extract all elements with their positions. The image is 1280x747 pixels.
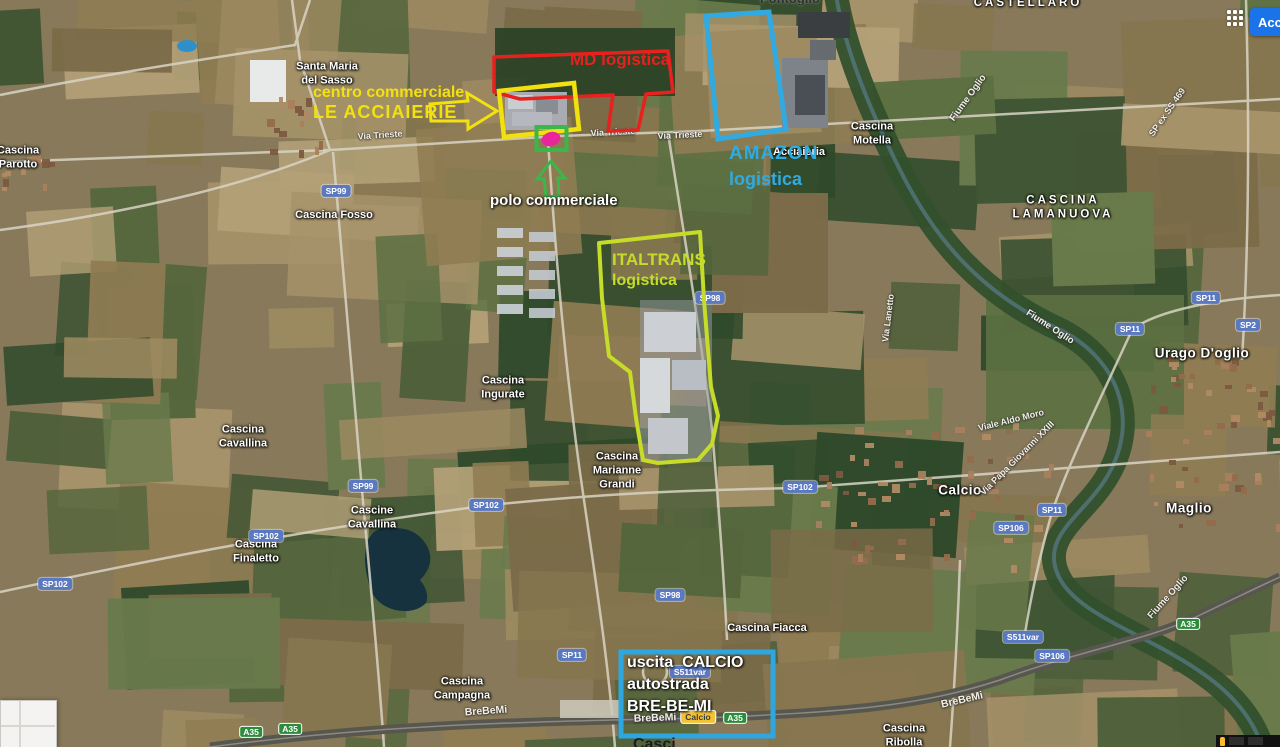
apps-grid-dot (1227, 22, 1231, 26)
satellite-map[interactable]: Santa Mariadel SassoCascinaParottoCascin… (0, 0, 1280, 747)
apps-grid-dot (1239, 16, 1243, 20)
amazon-label-line1: AMAZON (729, 144, 818, 163)
inset-thumbnail[interactable] (0, 700, 57, 747)
uscita-calcio-label-line1: uscita CALCIO (627, 655, 743, 671)
polo-commerciale-label: polo commerciale (490, 193, 618, 208)
apps-grid-dot (1233, 16, 1237, 20)
annotation-shapes-layer (0, 0, 1280, 747)
imagery-thumb[interactable] (1248, 737, 1263, 745)
amazon-label-line2: logistica (729, 170, 802, 188)
apps-grid-icon[interactable] (1227, 10, 1243, 26)
apps-grid-dot (1239, 22, 1243, 26)
centro-commerciale-label-line1: centro commerciale (313, 85, 464, 101)
clipped-top-place-label: Pontoglio (760, 0, 820, 5)
map-footer-bar (1216, 735, 1280, 747)
apps-grid-dot (1227, 16, 1231, 20)
signin-button[interactable]: Accedi (1250, 8, 1280, 36)
uscita-calcio-label-line2: autostrada (627, 677, 709, 693)
imagery-thumb[interactable] (1229, 737, 1244, 745)
inset-line (1, 725, 55, 727)
apps-grid-dot (1233, 10, 1237, 14)
centro-commerciale-label-line2: LE ACCIAIERIE (313, 103, 457, 121)
inset-line (19, 701, 21, 747)
italtrans-label-line1: ITALTRANS (612, 251, 706, 268)
apps-grid-dot (1233, 22, 1237, 26)
amazon-outline (706, 12, 786, 139)
clipped-bottom-label: Casci (633, 737, 676, 747)
apps-grid-dot (1239, 10, 1243, 14)
md-logistica-label: MD logistica (570, 51, 670, 68)
uscita-calcio-label-line3: BRE-BE-MI (627, 699, 711, 715)
pegman-icon[interactable] (1220, 737, 1225, 746)
apps-grid-dot (1227, 10, 1231, 14)
italtrans-label-line2: logistica (612, 273, 677, 289)
